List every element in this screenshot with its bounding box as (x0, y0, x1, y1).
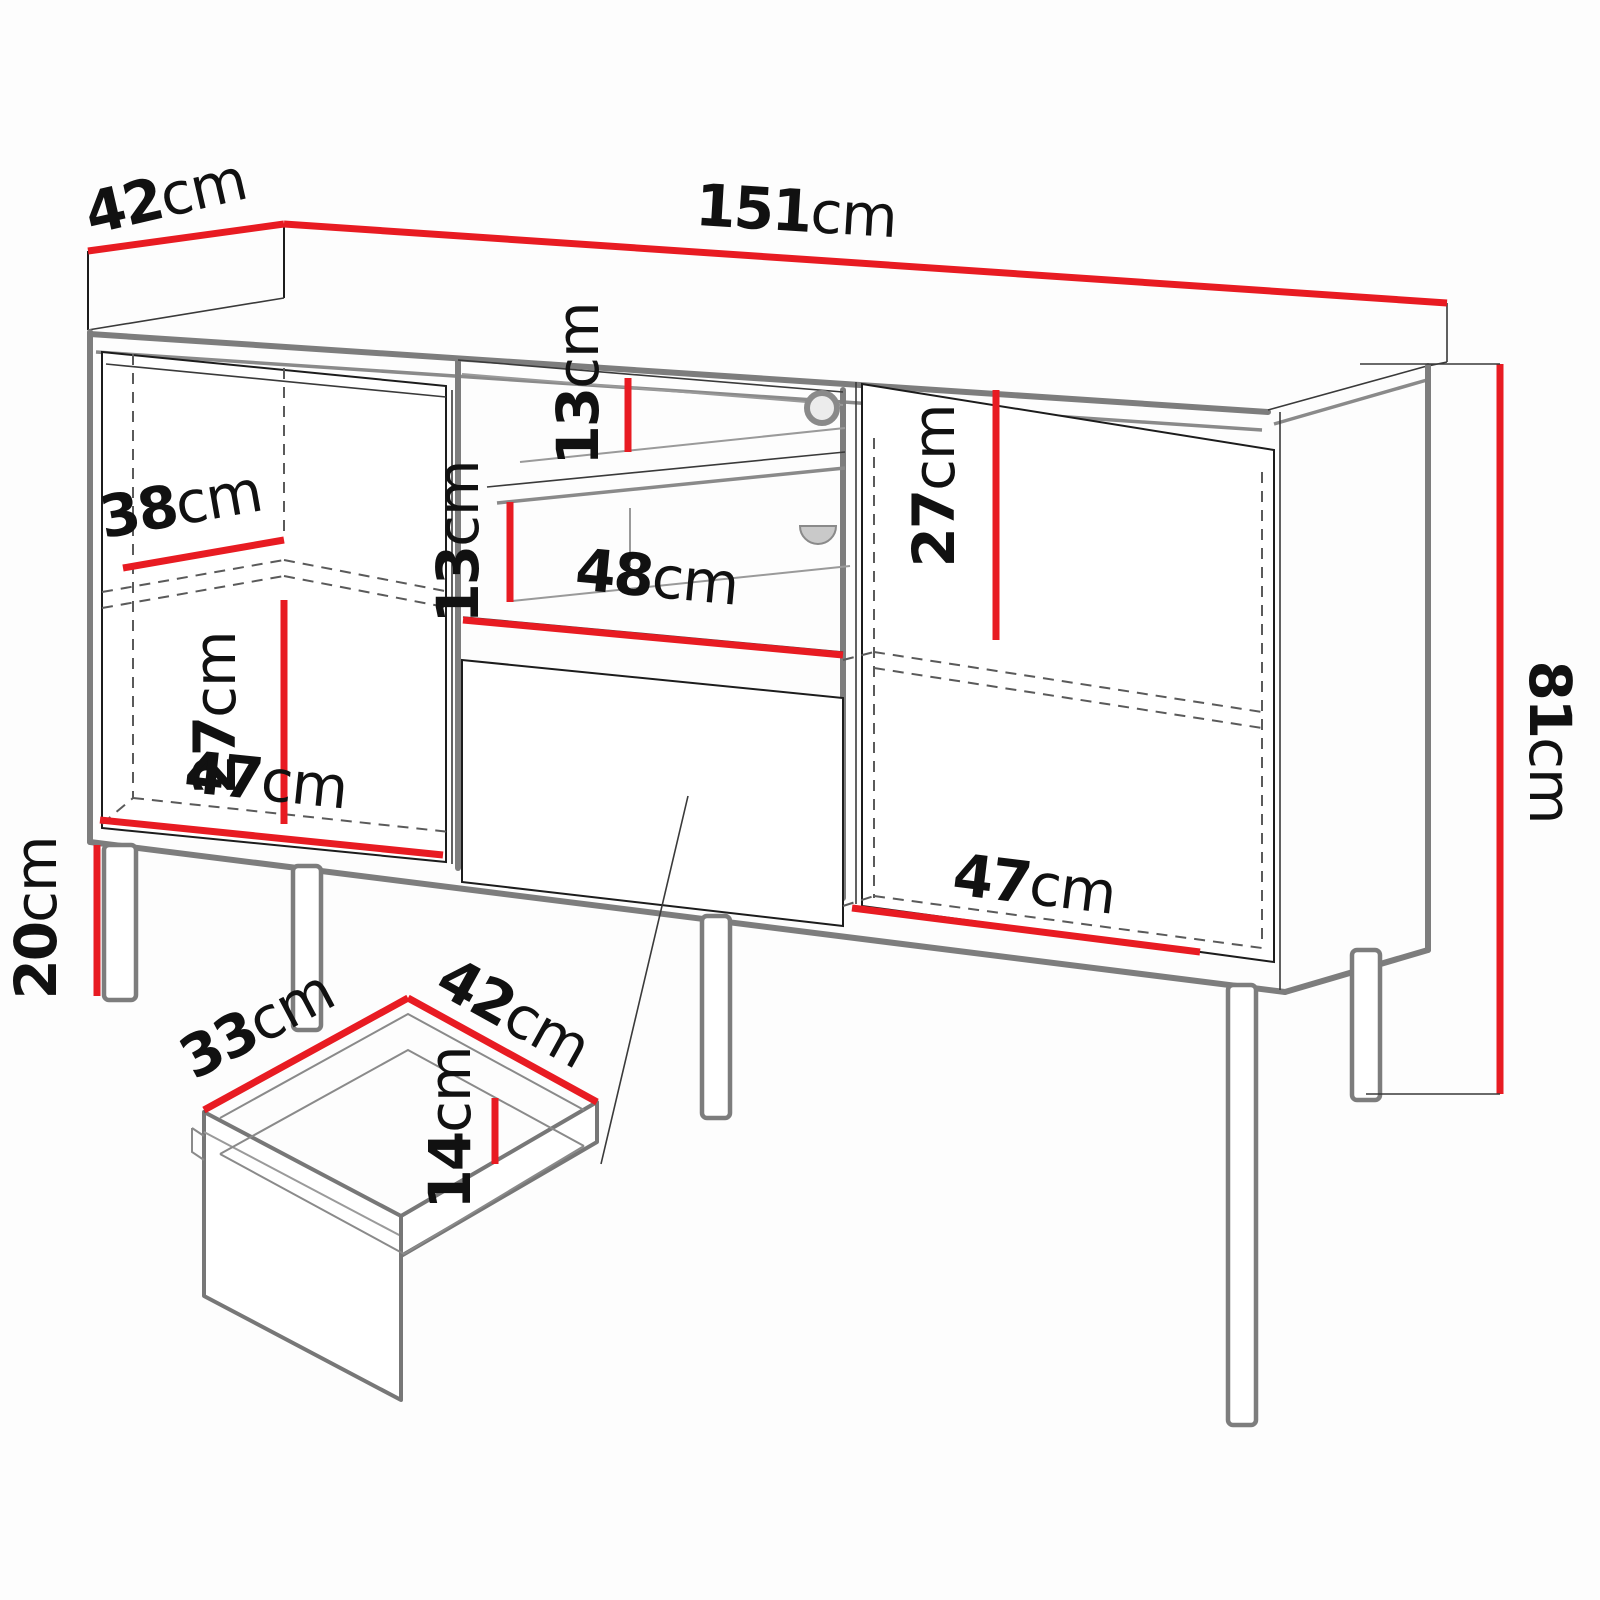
drawer-side-panel (204, 1112, 401, 1400)
dim-leg-height: 20cm (2, 836, 70, 999)
cable-hole-icon (807, 393, 837, 423)
dim-line-niche-width (463, 620, 843, 655)
slab-front-left-edge (88, 298, 284, 330)
drawer-front-panel (462, 660, 843, 926)
dim-total-width: 151cm (694, 171, 899, 251)
dim-right-shelf-height: 27cm (900, 404, 968, 567)
cable-hole-half-icon (800, 526, 836, 544)
leg-front-left (104, 845, 136, 1000)
dim-total-height: 81cm (1516, 660, 1584, 823)
leg-front-right (1228, 985, 1256, 1425)
dim-drawer-height: 14cm (416, 1046, 484, 1209)
leg-middle (702, 916, 730, 1118)
dim-drawer-depth: 33cm (169, 956, 345, 1093)
shelf-front-top-edge (487, 452, 845, 487)
dim-niche-upper-gap: 13cm (544, 302, 612, 465)
dim-niche-width: 48cm (572, 535, 741, 618)
dim-niche-lower-gap: 13cm (424, 460, 492, 623)
leg-back-right (1352, 950, 1380, 1100)
dimension-diagram: 42cm 151cm 81cm 38cm 27cm 47cm 20cm 13cm… (0, 0, 1600, 1600)
niche-top-edge (458, 360, 843, 392)
diagram-canvas: 42cm 151cm 81cm 38cm 27cm 47cm 20cm 13cm… (0, 0, 1600, 1600)
shelf-front-bottom-edge (497, 468, 845, 503)
